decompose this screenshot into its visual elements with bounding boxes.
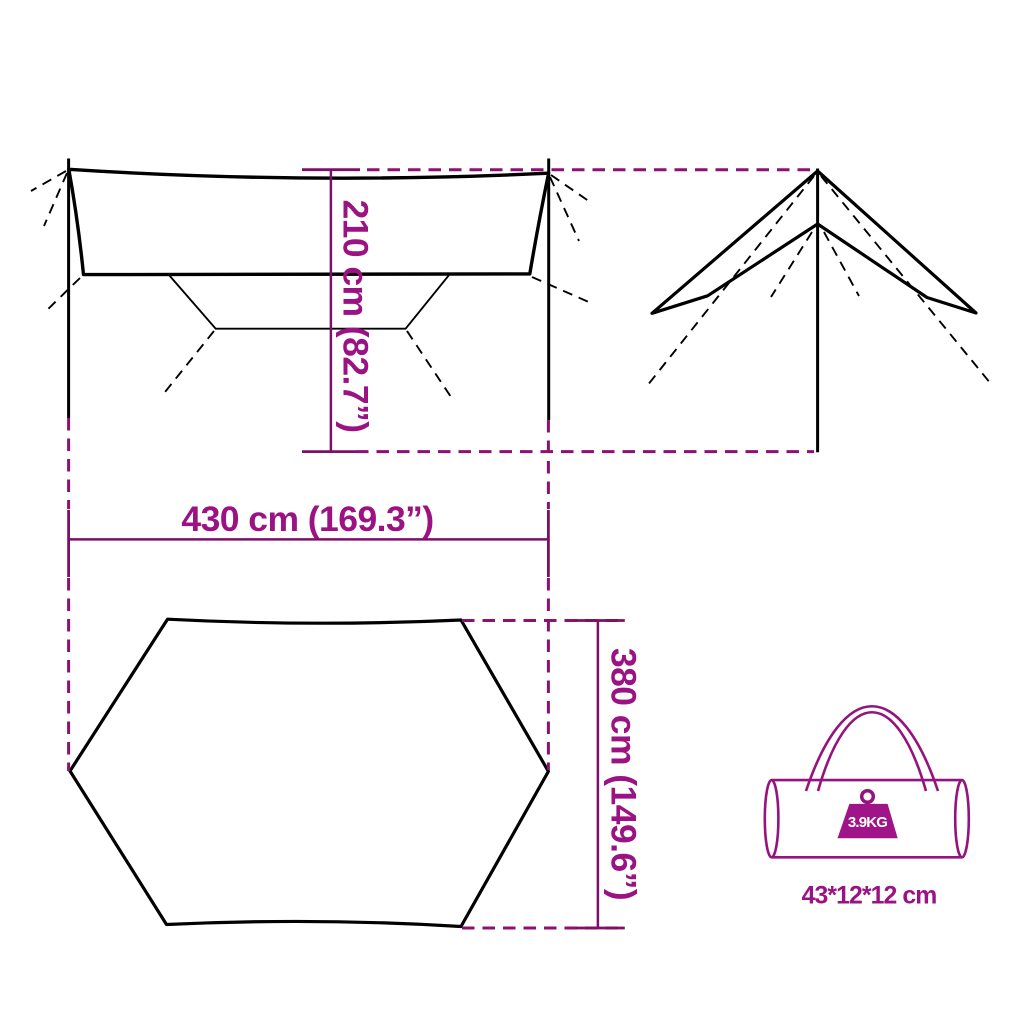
svg-text:210 cm (82.7”): 210 cm (82.7”) [336, 199, 376, 432]
svg-text:43*12*12 cm: 43*12*12 cm [802, 882, 937, 909]
svg-text:430 cm (169.3”): 430 cm (169.3”) [181, 499, 433, 539]
svg-text:380 cm (149.6”): 380 cm (149.6”) [604, 648, 644, 900]
svg-text:3.9KG: 3.9KG [848, 814, 887, 831]
